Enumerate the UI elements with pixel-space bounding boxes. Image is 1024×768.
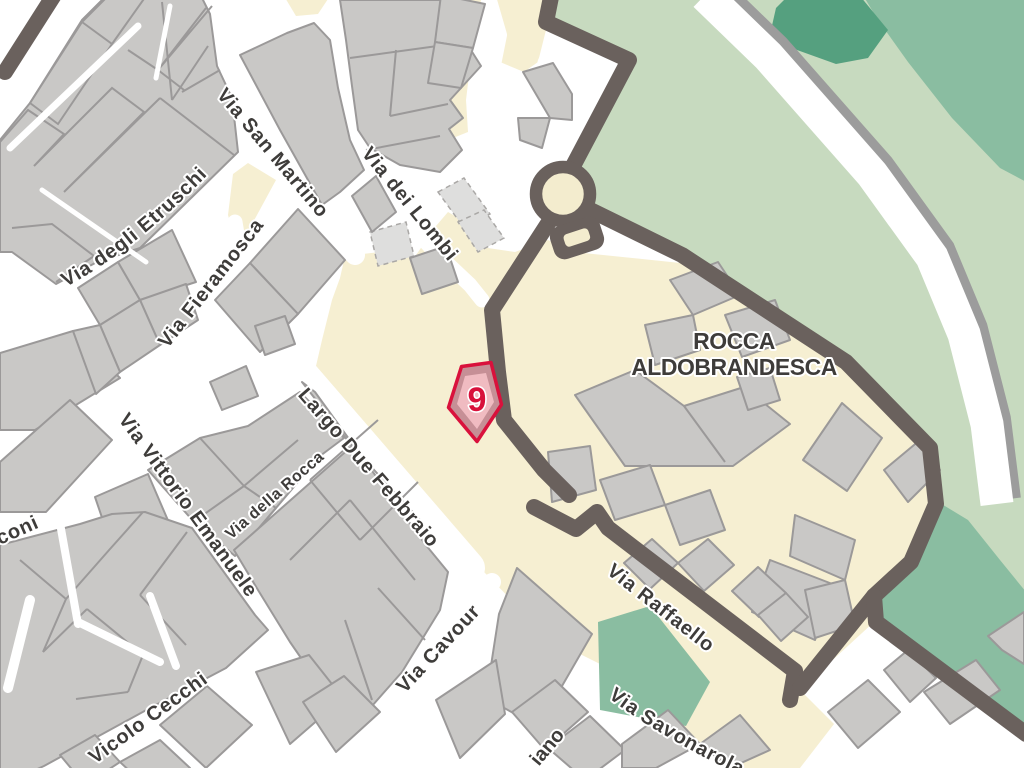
svg-text:ROCCA: ROCCA — [693, 328, 775, 354]
svg-text:ALDOBRANDESCA: ALDOBRANDESCA — [631, 354, 837, 380]
svg-text:9: 9 — [468, 381, 487, 419]
